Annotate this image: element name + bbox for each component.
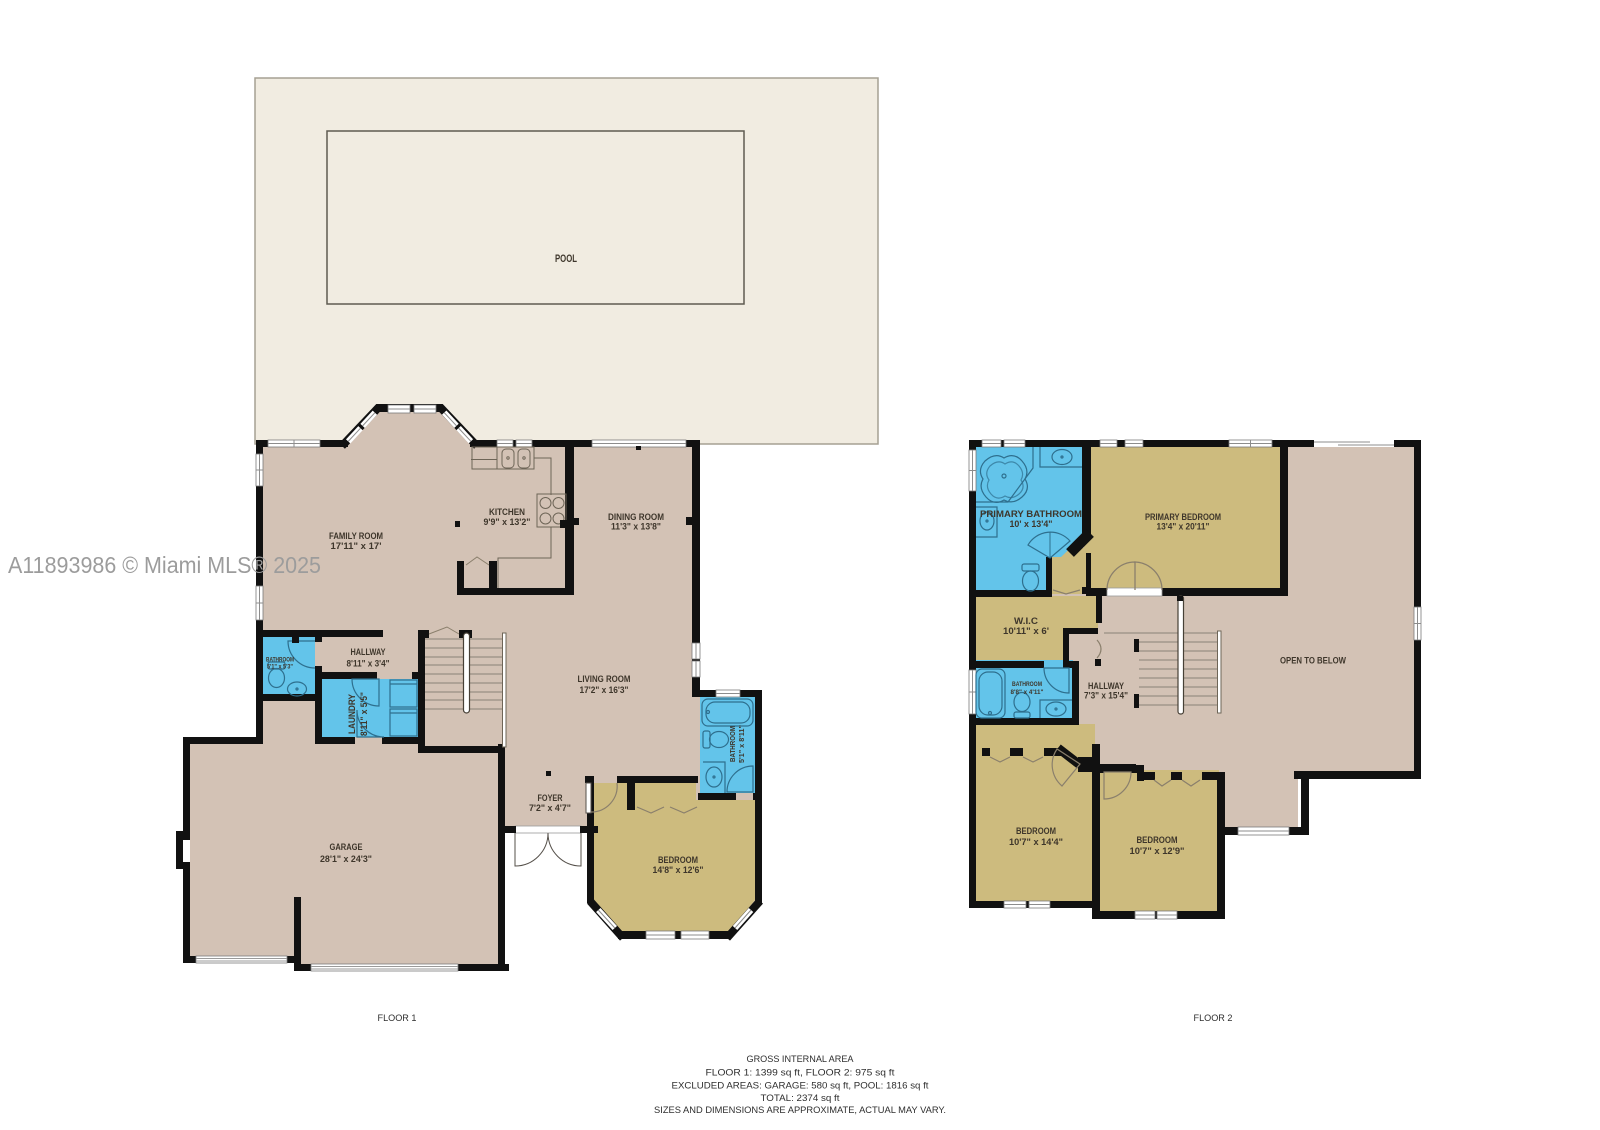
svg-text:SIZES AND DIMENSIONS ARE APPRO: SIZES AND DIMENSIONS ARE APPROXIMATE, AC…	[654, 1105, 946, 1116]
svg-text:BATHROOM: BATHROOM	[1012, 681, 1042, 688]
svg-text:FLOOR 1: FLOOR 1	[378, 1013, 417, 1024]
svg-text:FLOOR 1: 1399 sq ft, FLOOR 2:: FLOOR 1: 1399 sq ft, FLOOR 2: 975 sq ft	[706, 1068, 895, 1079]
svg-text:EXCLUDED AREAS: GARAGE: 580 sq: EXCLUDED AREAS: GARAGE: 580 sq ft, POOL:…	[672, 1081, 929, 1092]
svg-text:17'2" x 16'3": 17'2" x 16'3"	[580, 685, 629, 696]
svg-text:8'11" x 5'5": 8'11" x 5'5"	[359, 692, 370, 736]
svg-text:TOTAL: 2374 sq ft: TOTAL: 2374 sq ft	[761, 1093, 840, 1104]
svg-text:14'8" x 12'6": 14'8" x 12'6"	[653, 865, 704, 876]
svg-text:5'1" x 8'11": 5'1" x 8'11"	[739, 725, 746, 763]
svg-text:BATHROOM: BATHROOM	[730, 726, 737, 762]
svg-text:5'1" x 5'3": 5'1" x 5'3"	[267, 664, 293, 671]
svg-text:10'7" x 12'9": 10'7" x 12'9"	[1130, 846, 1185, 857]
svg-text:GROSS INTERNAL AREA: GROSS INTERNAL AREA	[747, 1054, 855, 1065]
svg-text:10'7" x 14'4": 10'7" x 14'4"	[1009, 837, 1063, 848]
svg-text:17'11" x 17': 17'11" x 17'	[331, 541, 382, 552]
svg-text:10'11" x 6': 10'11" x 6'	[1003, 626, 1049, 637]
svg-text:GARAGE: GARAGE	[330, 842, 363, 853]
svg-text:POOL: POOL	[555, 253, 577, 265]
svg-text:13'4" x 20'11": 13'4" x 20'11"	[1157, 522, 1210, 533]
svg-text:7'3" x 15'4": 7'3" x 15'4"	[1084, 691, 1128, 702]
svg-text:8'8" x 4'11": 8'8" x 4'11"	[1011, 689, 1044, 696]
svg-text:7'2" x 4'7": 7'2" x 4'7"	[529, 803, 571, 814]
svg-text:11'3" x 13'8": 11'3" x 13'8"	[611, 522, 661, 533]
svg-text:A11893986 © Miami MLS® 2025: A11893986 © Miami MLS® 2025	[8, 552, 321, 578]
svg-text:HALLWAY: HALLWAY	[351, 647, 387, 658]
svg-text:OPEN TO BELOW: OPEN TO BELOW	[1280, 656, 1346, 667]
svg-text:28'1" x 24'3": 28'1" x 24'3"	[320, 854, 372, 865]
svg-text:BATHROOM: BATHROOM	[266, 657, 294, 664]
svg-text:10' x 13'4": 10' x 13'4"	[1010, 519, 1053, 530]
svg-text:BEDROOM: BEDROOM	[1016, 826, 1056, 837]
svg-text:LAUNDRY: LAUNDRY	[347, 693, 358, 734]
svg-text:9'9" x 13'2": 9'9" x 13'2"	[484, 517, 531, 528]
svg-text:FLOOR 2: FLOOR 2	[1194, 1013, 1233, 1024]
svg-text:BEDROOM: BEDROOM	[1137, 835, 1178, 846]
svg-text:8'11" x 3'4": 8'11" x 3'4"	[347, 659, 390, 670]
svg-text:LIVING ROOM: LIVING ROOM	[578, 674, 631, 685]
